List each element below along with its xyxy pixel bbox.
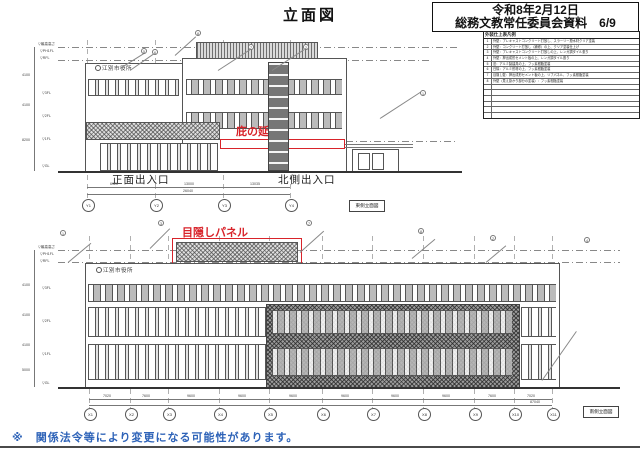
legend-row-empty <box>484 113 639 118</box>
window-band <box>88 284 556 302</box>
level-label: ▽2FL <box>42 319 51 323</box>
level-label: ▽RFL <box>40 56 50 60</box>
dim-label: 7600 <box>142 394 150 398</box>
axis-bubble-x5: X5 <box>264 408 277 421</box>
level-label: ▽RFL <box>40 259 50 263</box>
finish-callout: 8 <box>195 30 201 36</box>
vdim-label: 4100 <box>22 343 30 347</box>
east-caption-box: 東側立面図 <box>349 200 385 212</box>
level-label: ▽最高高さ <box>38 42 55 47</box>
annex-door <box>358 153 370 170</box>
window-band <box>88 79 179 96</box>
level-line <box>58 250 620 251</box>
annex-door <box>372 153 384 170</box>
dim-label: 9600 <box>187 394 195 398</box>
drawing-sheet: 立面図 令和8年2月12日 総務文教常任委員会資料 6/9 外装仕上表凡例 1外… <box>0 0 640 449</box>
main-entrance-label: 正面出入口 <box>112 172 170 187</box>
privacy-screen-label: 目隠しパネル <box>182 224 248 240</box>
north-canopy-line <box>345 147 413 148</box>
vdim-label: 8200 <box>22 138 30 142</box>
dim-line <box>89 405 552 406</box>
axis-bubble-x9: X9 <box>469 408 482 421</box>
axis-bubble-y3: Y3 <box>218 199 231 212</box>
axis-bubble-y1: Y1 <box>82 199 95 212</box>
dim-label: 13000 <box>184 182 194 186</box>
axis-bubble-x3: X3 <box>163 408 176 421</box>
finish-callout: 1 <box>60 230 66 236</box>
header-committee: 総務文教常任委員会資料 6/9 <box>433 17 638 30</box>
finish-callout: 3 <box>158 220 164 226</box>
dim-label: 7020 <box>527 394 535 398</box>
leader-line <box>380 92 421 119</box>
axis-bubble-x7: X7 <box>367 408 380 421</box>
finish-callout: 2 <box>490 235 496 241</box>
window-band <box>272 348 512 376</box>
finish-callout: 8 <box>418 228 424 234</box>
dim-label: 9600 <box>391 394 399 398</box>
vdim-label: 4100 <box>22 73 30 77</box>
vdim-label: 4100 <box>22 103 30 107</box>
dim-label: 9600 <box>341 394 349 398</box>
finish-callout: 5 <box>141 48 147 54</box>
building-sign: 江別市役所 <box>96 266 133 274</box>
privacy-screen-highlight <box>172 238 302 265</box>
finish-callout: 4 <box>584 237 590 243</box>
north-entrance-label: 北側出入口 <box>278 172 336 187</box>
dim-line <box>89 399 552 400</box>
level-label: ▽3FL <box>42 286 51 290</box>
north-canopy-line <box>345 144 413 145</box>
leader-line <box>486 245 507 262</box>
vertical-dim-line <box>34 47 35 171</box>
level-label: ▽GL <box>42 164 50 168</box>
level-label: ▽2FL <box>42 114 51 118</box>
level-line <box>346 141 458 142</box>
vertical-dim-line <box>34 250 35 387</box>
level-label: ▽3FL <box>42 91 51 95</box>
dim-line <box>87 194 290 195</box>
window-band <box>521 344 556 380</box>
finish-callout: 1 <box>420 90 426 96</box>
axis-bubble-x2: X2 <box>125 408 138 421</box>
vdim-label: 4100 <box>22 283 30 287</box>
dim-label: 7600 <box>488 394 496 398</box>
dim-label: 9600 <box>442 394 450 398</box>
city-emblem-icon <box>96 267 102 273</box>
revision-note: ※ 関係法令等により変更になる可能性があります。 <box>12 429 298 445</box>
legend-title: 外装仕上表凡例 <box>484 32 639 39</box>
level-label: ▽GL <box>42 381 50 385</box>
axis-bubble-x1: X1 <box>84 408 97 421</box>
vdim-label: 4100 <box>22 313 30 317</box>
axis-bubble-x10: X10 <box>509 408 522 421</box>
building-sign: 江別市役所 <box>95 64 132 72</box>
level-label: ▽PH1FL <box>40 49 54 53</box>
window-band <box>521 307 556 337</box>
finish-callout: 6 <box>152 49 158 55</box>
total-dim-label: 26040 <box>183 189 193 193</box>
total-dim-label: 87040 <box>530 400 540 404</box>
building-sign-text: 江別市役所 <box>102 64 132 72</box>
city-emblem-icon <box>95 65 101 71</box>
axis-bubble-x11: X11 <box>547 408 560 421</box>
vdim-label: 5000 <box>22 368 30 372</box>
header-box: 令和8年2月12日 総務文教常任委員会資料 6/9 <box>432 2 639 32</box>
axis-bubble-x4: X4 <box>214 408 227 421</box>
level-label: ▽1FL <box>42 137 51 141</box>
building-sign-text: 江別市役所 <box>103 266 133 274</box>
dim-label: 7020 <box>103 394 111 398</box>
dim-label: 9600 <box>238 394 246 398</box>
dim-label: 6920 <box>110 182 118 186</box>
window-band <box>186 79 342 95</box>
stair-tower <box>268 62 289 171</box>
axis-bubble-x6: X6 <box>317 408 330 421</box>
entrance-glazing <box>100 143 218 171</box>
bottom-edge-line <box>0 446 640 448</box>
finish-callout: 7 <box>306 220 312 226</box>
finish-callout: 7 <box>248 44 254 50</box>
dim-line <box>87 187 290 188</box>
axis-bubble-x8: X8 <box>418 408 431 421</box>
finish-legend-table: 外装仕上表凡例 1外壁：プレキャストコンクリート打放し、スラーリー撥水材クリア塗… <box>483 31 640 119</box>
dim-label: 9600 <box>289 394 297 398</box>
ground-line <box>58 387 620 389</box>
axis-bubble-y2: Y2 <box>150 199 163 212</box>
level-label: ▽最高高さ <box>38 245 55 250</box>
level-label: ▽PH1FL <box>40 252 54 256</box>
south-caption-box: 南側立面図 <box>583 406 619 418</box>
level-label: ▽1FL <box>42 352 51 356</box>
leader-line <box>68 243 92 263</box>
axis-bubble-y4: Y4 <box>285 199 298 212</box>
window-band <box>272 310 512 334</box>
dim-label: 13035 <box>250 182 260 186</box>
page-title: 立面図 <box>283 4 337 25</box>
canopy-hatch <box>86 122 220 140</box>
window-band <box>88 344 266 380</box>
finish-callout: 2 <box>303 44 309 50</box>
window-band <box>88 307 266 337</box>
